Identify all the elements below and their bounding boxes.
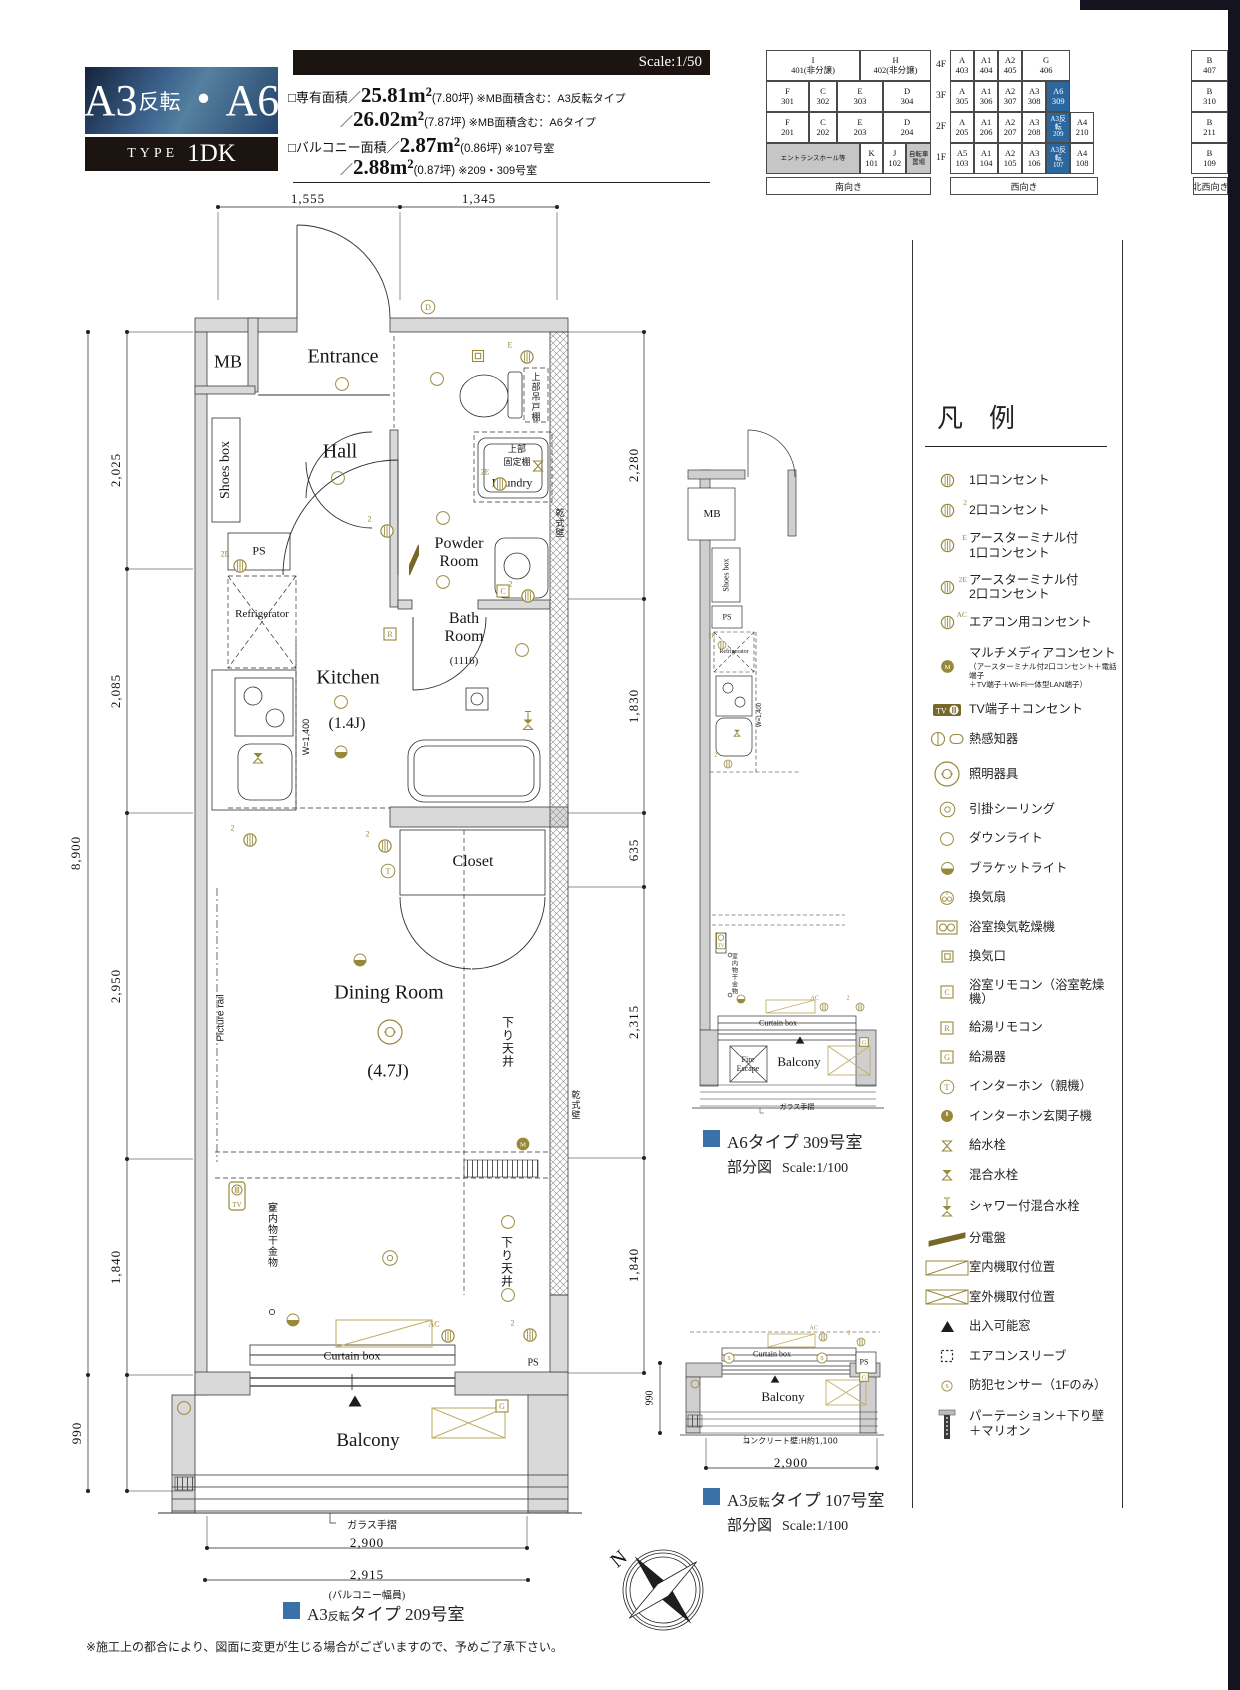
legend-item: シャワー付混合水栓 xyxy=(925,1196,1117,1217)
unit-cell-108: A4108 xyxy=(1070,143,1094,174)
o-plan-icon: E xyxy=(519,349,536,366)
outlet-earth-2-icon: 2E xyxy=(925,579,969,596)
o-plan-icon: AC xyxy=(440,1328,457,1345)
c-plan-icon xyxy=(333,694,349,710)
refrigerator-label: Refrigerator xyxy=(235,608,289,620)
title-part: A6 xyxy=(226,79,280,123)
legend-item-label: 照明器具 xyxy=(969,767,1018,782)
heat-detector-icon xyxy=(925,731,969,747)
legend-item-label: マルチメディアコンセント xyxy=(969,646,1116,660)
tapf-plan-icon xyxy=(251,751,265,765)
legend-item: TVTV端子＋コンセント xyxy=(925,701,1117,718)
bath-dryer-icon xyxy=(925,920,969,935)
vent-opening-icon xyxy=(925,950,969,963)
bath-size-label: (1116) xyxy=(450,655,479,667)
ocs-plan-icon: S xyxy=(816,1352,828,1364)
legend-item-label: インターホン（親機） xyxy=(969,1079,1092,1094)
legend-item: 出入可能窓 xyxy=(925,1318,1117,1335)
legend-item-label: 換気口 xyxy=(969,949,1006,964)
water-heater-icon: G xyxy=(925,1050,969,1064)
unit-cell-103: A5103 xyxy=(950,143,974,174)
half-plan-icon xyxy=(334,745,349,760)
legend-item: 室外機取付位置 xyxy=(925,1289,1117,1306)
outlet-1-icon xyxy=(925,472,969,489)
sq-plan-icon: R xyxy=(383,627,397,641)
svg-text:T: T xyxy=(945,1082,950,1091)
unit-cell-209: A3反転209 xyxy=(1046,112,1070,143)
mixing-tap-icon xyxy=(925,1168,969,1182)
svg-text:TV: TV xyxy=(718,944,725,949)
multimedia-outlet-icon: M xyxy=(925,659,969,674)
legend-item-label: 分電盤 xyxy=(969,1231,1006,1246)
legend-item-label: エアコンスリーブ xyxy=(969,1349,1066,1364)
a6-shoes-box-label: Shoes box xyxy=(722,558,731,591)
scale-bar: Scale:1/50 xyxy=(293,50,710,75)
unit-cell-303: E303 xyxy=(837,81,883,112)
legend-item: Tインターホン（親機） xyxy=(925,1078,1117,1095)
svg-text:G: G xyxy=(944,1053,950,1062)
legend-item: エアコンスリーブ xyxy=(925,1348,1117,1365)
legend-item: 1口コンセント xyxy=(925,472,1117,489)
svg-text:M: M xyxy=(520,1141,526,1148)
security-sensor-icon: S xyxy=(925,1380,969,1392)
half-plan-icon xyxy=(353,953,368,968)
o-plan-icon: 2 xyxy=(377,838,394,855)
o-plan-icon: 2 xyxy=(242,832,259,849)
dimension-label: 8,900 xyxy=(68,836,84,870)
legend-item-label: 給湯リモコン xyxy=(969,1020,1043,1035)
unit-cell: 自転車 置場 xyxy=(906,143,931,174)
a6-fire-escape-label: Fire Escape xyxy=(737,1055,760,1073)
area-line: ／26.02m²(7.87坪) ※MB面積含む：A6タイプ xyxy=(340,107,596,132)
kitchen-width-label: W=1,400 xyxy=(301,719,311,755)
powder-room-label: Powder Room xyxy=(435,535,484,571)
unit-cell-206: A1206 xyxy=(974,112,998,143)
board-plan-icon xyxy=(408,538,421,578)
dimension-label: 990 xyxy=(69,1422,85,1445)
c-plan-icon xyxy=(514,642,530,658)
title-part: A3 xyxy=(84,79,138,123)
legend-item: インターホン玄関子機 xyxy=(925,1108,1117,1125)
legend-item-label: 2口コンセント xyxy=(969,503,1050,518)
legend-item-label: 室外機取付位置 xyxy=(969,1290,1055,1305)
legend-item: 混合水栓 xyxy=(925,1167,1117,1184)
unit-cell-309: A6309 xyxy=(1046,81,1070,112)
legend-item: Eアースターミナル付 1口コンセント xyxy=(925,531,1117,560)
legend-item-label: ブラケットライト xyxy=(969,861,1067,876)
dimension-label: 2,915 xyxy=(350,1567,384,1583)
accessible-window-icon xyxy=(925,1320,969,1333)
dimension-label: 2,900 xyxy=(774,1455,808,1471)
outlet-2-icon: 2 xyxy=(925,502,969,519)
p107-balcony-label: Balcony xyxy=(761,1389,804,1405)
svg-text:R: R xyxy=(944,1024,950,1033)
unit-cell xyxy=(1070,50,1094,81)
o-plan-icon: 2E xyxy=(492,476,509,493)
p107-ps-label: PS xyxy=(860,1358,869,1367)
type-box: TYPE 1DK xyxy=(85,137,278,171)
tvbox-plan-icon: TV xyxy=(228,1181,246,1211)
svg-text:TV: TV xyxy=(232,1201,241,1209)
dimension-label: 990 xyxy=(645,1391,656,1406)
dimension-label: 2,900 xyxy=(350,1535,384,1551)
svg-text:S: S xyxy=(820,1356,823,1362)
hook2-plan-icon xyxy=(728,993,733,998)
dining-size-label: (4.7J) xyxy=(367,1061,409,1082)
a6-curtain-box-label: Curtain box xyxy=(759,1019,797,1028)
legend-item-label: 室内機取付位置 xyxy=(969,1260,1055,1275)
svg-text:M: M xyxy=(944,663,950,670)
bracket-light-icon xyxy=(925,861,969,876)
dimension-label: 2,280 xyxy=(626,448,642,482)
unit-cell-205: A205 xyxy=(950,112,974,143)
legend-item: ブラケットライト xyxy=(925,860,1117,877)
legend-item-label: TV端子＋コンセント xyxy=(969,702,1083,717)
legend-item-label: 熱感知器 xyxy=(969,732,1018,747)
unit-cell-104: A1104 xyxy=(974,143,998,174)
unit-cell-102: J102 xyxy=(883,143,906,174)
legend-item-label: 混合水栓 xyxy=(969,1168,1018,1183)
legend-item-label: 出入可能窓 xyxy=(969,1319,1031,1334)
unit-cell-406: G406 xyxy=(1022,50,1070,81)
floor-label-4F: 4F xyxy=(933,60,949,70)
svg-text:S: S xyxy=(945,1384,948,1390)
oc-plan-icon: T xyxy=(380,863,396,879)
unit-cell-202: C202 xyxy=(809,112,837,143)
compass-icon xyxy=(601,1528,725,1652)
mb-label: MB xyxy=(214,352,242,373)
caption-square-icon xyxy=(703,1130,720,1147)
kitchen-label: Kitchen xyxy=(316,667,379,690)
ceiling-hook-icon xyxy=(925,801,969,818)
dimension-label: 1,830 xyxy=(626,689,642,723)
direction-label: 西向き xyxy=(950,177,1098,195)
c-plan-icon xyxy=(176,1400,192,1416)
partition-icon xyxy=(925,1407,969,1441)
dining-room-label: Dining Room xyxy=(334,982,443,1005)
unit-cell-302: C302 xyxy=(809,81,837,112)
tri-plan-icon xyxy=(348,1395,363,1408)
escape-hatch xyxy=(175,1477,195,1490)
unit-cell-405: A2405 xyxy=(998,50,1022,81)
tapf2-plan-icon xyxy=(733,729,742,738)
legend-item: G給湯器 xyxy=(925,1049,1117,1066)
water-heater-remote-icon: R xyxy=(925,1021,969,1035)
c-plan-icon xyxy=(500,1287,516,1303)
outdoor-unit-icon xyxy=(925,1289,969,1305)
legend-item: 室内機取付位置 xyxy=(925,1259,1117,1276)
half2-plan-icon xyxy=(736,994,746,1004)
unit-cell-402(非分譲): H402(非分譲) xyxy=(860,50,931,81)
unit-cell-105: A2105 xyxy=(998,143,1022,174)
upper-hanging-shelf-label: 上部吊戸棚 xyxy=(529,372,542,422)
caption-square-icon xyxy=(283,1602,300,1619)
tri2-plan-icon xyxy=(795,1036,805,1045)
unit-cell-201: F201 xyxy=(766,112,809,143)
unit-cell-304: D304 xyxy=(883,81,931,112)
title-part: ・ xyxy=(182,79,226,123)
a6-mb-label: MB xyxy=(703,508,720,520)
unit-cell-308: A3308 xyxy=(1022,81,1046,112)
area-divider xyxy=(293,182,710,183)
legend-item: 引掛シーリング xyxy=(925,801,1117,818)
balcony-label: Balcony xyxy=(336,1430,399,1452)
p107-plan-caption: A3反転タイプ 107号室 部分図Scale:1/100 xyxy=(703,1486,885,1535)
closet-label: Closet xyxy=(453,853,494,871)
svg-text:G: G xyxy=(862,1040,867,1047)
legend-item-note: （アースターミナル付2口コンセント＋電話端子 ＋TV端子＋Wi-Fi一体型LAN… xyxy=(969,662,1117,689)
a6-glass-rail-label: ガラス手摺 xyxy=(780,1102,815,1112)
type-label: TYPE xyxy=(127,146,178,162)
sq-plan-icon: G xyxy=(495,1399,509,1413)
intercom-main-icon: T xyxy=(925,1079,969,1095)
floor-label-3F: 3F xyxy=(933,91,949,101)
shower-plan-icon xyxy=(521,710,535,731)
o-plan-icon: 2 xyxy=(379,523,396,540)
unit-cell-203: E203 xyxy=(837,112,883,143)
legend-item-label: 換気扇 xyxy=(969,890,1006,905)
c-plan-icon xyxy=(334,376,350,392)
ps-balcony-label: PS xyxy=(527,1358,538,1369)
west-facing-units: A403A1404A2405G406A305A1306A2307A3308A63… xyxy=(950,50,1094,174)
unit-cell-207: A2207 xyxy=(998,112,1022,143)
legend-item: ACエアコン用コンセント xyxy=(925,614,1117,631)
right-edge-bar xyxy=(1228,0,1240,1690)
dimension-label: 1,555 xyxy=(291,191,325,207)
legend-item: 熱感知器 xyxy=(925,731,1117,748)
p107-concrete-label: コンクリート壁:H約1,100 xyxy=(742,1436,838,1447)
sqo-plan-icon xyxy=(472,350,485,363)
legend-item: Mマルチメディアコンセント（アースターミナル付2口コンセント＋電話端子 ＋TV端… xyxy=(925,644,1117,689)
legend-item-label: 1口コンセント xyxy=(969,473,1050,488)
hook-plan-icon xyxy=(269,1309,276,1316)
unit-cell-107: A3反転107 xyxy=(1046,143,1070,174)
legend-item-label: 給湯器 xyxy=(969,1050,1006,1065)
dry-wall-2-label: 乾式壁 xyxy=(569,1090,582,1120)
glass-rail-label: ガラス手摺 xyxy=(347,1517,397,1532)
a6-plan-caption: A6タイプ 309号室 部分図Scale:1/100 xyxy=(703,1128,863,1177)
dblsm-plan-icon xyxy=(382,1250,399,1267)
water-tap-icon xyxy=(925,1139,969,1153)
dimension-label: 2,950 xyxy=(108,969,124,1003)
area-line: ／2.88m²(0.87坪) ※209・309号室 xyxy=(340,155,537,180)
top-edge-bar xyxy=(1080,0,1240,10)
a6-indoor-hanger-label: 室内物干金物 xyxy=(730,953,739,995)
sq2-plan-icon: G xyxy=(859,1037,869,1047)
legend-item: 分電盤 xyxy=(925,1230,1117,1247)
dimension-label: 1,840 xyxy=(626,1248,642,1282)
legend-item: 浴室換気乾燥機 xyxy=(925,919,1117,936)
half-plan-icon xyxy=(286,1313,301,1328)
curtain-box-label: Curtain box xyxy=(324,1349,381,1364)
o2-plan-icon: 2 xyxy=(855,1002,866,1013)
aircon-sleeve-icon xyxy=(925,1349,969,1363)
legend-item: R給湯リモコン xyxy=(925,1019,1117,1036)
o-plan-icon: 2 xyxy=(522,1327,539,1344)
type-value: 1DK xyxy=(187,140,236,168)
unit-cell-109: B109 xyxy=(1191,143,1228,174)
legend-panel: 凡 例 1口コンセント22口コンセントEアースターミナル付 1口コンセント2Eア… xyxy=(912,240,1123,1508)
bath-remote-icon: C xyxy=(925,985,969,999)
o2-plan-icon: AC xyxy=(818,1332,829,1343)
o2-plan-icon: AC xyxy=(819,1002,830,1013)
legend-item-label: 防犯センサー（1Fのみ） xyxy=(969,1378,1106,1393)
legend-item-label: 給水栓 xyxy=(969,1138,1006,1153)
tv-outlet-icon: TV xyxy=(925,702,969,718)
legend-header: 凡 例 xyxy=(937,398,1015,435)
outlet-earth-1-icon: E xyxy=(925,537,969,554)
svg-text:C: C xyxy=(944,988,949,997)
svg-text:T: T xyxy=(386,867,391,876)
unit-cell-306: A1306 xyxy=(974,81,998,112)
c2-plan-icon xyxy=(690,1379,700,1389)
floor-plan-sheet: A3反転・A6 TYPE 1DK Scale:1/50 □専有面積／25.81m… xyxy=(0,0,1240,1690)
drop-ceiling-2-label: 下り天井 xyxy=(499,1236,516,1288)
a6-kitchen-width-label: W=1,400 xyxy=(757,703,763,727)
unit-cell-305: A305 xyxy=(950,81,974,112)
legend-item-label: 浴室リモコン（浴室乾燥機） xyxy=(969,978,1117,1007)
legend-item-label: パーテーション＋下り壁 ＋マリオン xyxy=(969,1409,1104,1438)
picture-rail-label: Picture rail xyxy=(216,994,227,1041)
legend-item-label: アースターミナル付 2口コンセント xyxy=(969,573,1078,602)
unit-cell: エントランスホール等 xyxy=(766,143,860,174)
svg-text:R: R xyxy=(387,630,393,639)
legend-item: 換気扇 xyxy=(925,889,1117,906)
distribution-board-icon xyxy=(925,1230,969,1247)
svg-text:S: S xyxy=(727,1356,730,1362)
oc-plan-icon: D xyxy=(420,299,436,315)
dimension-label: 2,315 xyxy=(626,1005,642,1039)
unit-cell-310: B310 xyxy=(1191,81,1228,112)
intercom-entrance-icon xyxy=(925,1109,969,1123)
p107-partial-plan xyxy=(680,1332,884,1442)
unit-cell-307: A2307 xyxy=(998,81,1022,112)
ocs-plan-icon: S xyxy=(723,1352,735,1364)
sq2-plan-icon: G xyxy=(859,1372,869,1382)
tri2-plan-icon xyxy=(770,1375,780,1384)
bath-room-label: Bath Room xyxy=(444,610,483,646)
o2-plan-icon: 2E xyxy=(717,640,728,651)
legend-item: 2Eアースターミナル付 2口コンセント xyxy=(925,573,1117,602)
unit-cell-403: A403 xyxy=(950,50,974,81)
direction-label: 南向き xyxy=(766,177,931,195)
c-plan-icon xyxy=(429,371,445,387)
light-fixture-icon xyxy=(925,760,969,788)
legend-item: C浴室リモコン（浴室乾燥機） xyxy=(925,978,1117,1007)
main-plan-caption: A3反転タイプ 209号室 xyxy=(283,1600,465,1625)
o2-plan-icon: 2 xyxy=(856,1337,867,1348)
legend-item-label: エアコン用コンセント xyxy=(969,615,1092,630)
a6-balcony-label: Balcony xyxy=(777,1054,820,1070)
c-plan-icon xyxy=(435,510,451,526)
legend-item-label: 引掛シーリング xyxy=(969,802,1055,817)
legend-item-label: シャワー付混合水栓 xyxy=(969,1199,1080,1214)
kitchen-size-label: (1.4J) xyxy=(329,715,366,733)
dbl-plan-icon xyxy=(376,1018,404,1046)
o-plan-icon: 2E xyxy=(232,558,249,575)
northwest-facing-units: B407B310B211B109 xyxy=(1191,50,1228,174)
c-plan-icon xyxy=(435,574,451,590)
unit-cell-204: D204 xyxy=(883,112,931,143)
tap-plan-icon xyxy=(531,459,545,473)
dimension-label: 1,840 xyxy=(108,1250,124,1284)
direction-label: 北西向き xyxy=(1193,177,1228,195)
legend-item-label: アースターミナル付 1口コンセント xyxy=(969,531,1078,560)
indoor-unit-icon xyxy=(925,1260,969,1276)
unit-cell-101: K101 xyxy=(860,143,883,174)
dimension-label: 635 xyxy=(626,839,642,862)
upper-fixed-shelf-label: 上部 固定棚 xyxy=(503,442,530,468)
outlet-aircon-icon: AC xyxy=(925,614,969,631)
unit-cell-404: A1404 xyxy=(974,50,998,81)
unit-cell-407: B407 xyxy=(1191,50,1228,81)
dimension-label: 2,085 xyxy=(108,674,124,708)
dry-wall-hatch xyxy=(550,332,568,1295)
p107-curtain-box-label: Curtain box xyxy=(753,1350,791,1359)
svg-text:TV: TV xyxy=(936,706,947,715)
tvbox2-plan-icon: TV xyxy=(716,933,726,950)
vent-fan-icon xyxy=(925,890,969,906)
o-plan-icon: 2 xyxy=(520,588,537,605)
footnote: ※施工上の都合により、図面に変更が生じる場合がございますので、予めご了承下さい。 xyxy=(86,1638,563,1655)
om-plan-icon: M xyxy=(516,1137,531,1152)
shower-mixing-tap-icon xyxy=(925,1196,969,1217)
legend-item: S防犯センサー（1Fのみ） xyxy=(925,1377,1117,1394)
legend-item: 給水栓 xyxy=(925,1137,1117,1154)
entrance-label: Entrance xyxy=(307,346,378,369)
floor-label-1F: 1F xyxy=(933,153,949,163)
dimension-label: 1,345 xyxy=(462,191,496,207)
legend-item: ダウンライト xyxy=(925,830,1117,847)
a6-ps-label: PS xyxy=(723,613,732,622)
unit-cell-210: A4210 xyxy=(1070,112,1094,143)
plan-type-title: A3反転・A6 xyxy=(85,67,278,134)
floor-label-2F: 2F xyxy=(933,122,949,132)
title-part: 反転 xyxy=(138,86,182,116)
legend-item-label: インターホン玄関子機 xyxy=(969,1109,1092,1124)
legend-item: 22口コンセント xyxy=(925,502,1117,519)
c-plan-icon xyxy=(500,1214,516,1230)
unit-cell-301: F301 xyxy=(766,81,809,112)
svg-text:G: G xyxy=(862,1375,867,1382)
unit-cell-106: A3106 xyxy=(1022,143,1046,174)
ps-kitchen-label: PS xyxy=(252,544,265,559)
dimension-label: 2,025 xyxy=(108,453,124,487)
unit-cell xyxy=(1070,81,1094,112)
unit-cell-401(非分譲): I401(非分譲) xyxy=(766,50,860,81)
legend-item-label: ダウンライト xyxy=(969,831,1043,846)
hook-plan-icon xyxy=(269,1205,276,1212)
unit-cell-211: B211 xyxy=(1191,112,1228,143)
shoes-box-label: Shoes box xyxy=(218,441,234,499)
legend-rule xyxy=(925,446,1107,447)
svg-text:G: G xyxy=(499,1402,505,1411)
dry-wall-1-label: 乾式壁 xyxy=(553,508,566,538)
scale-label: Scale:1/50 xyxy=(639,54,702,71)
caption-square-icon xyxy=(703,1488,720,1505)
drop-ceiling-1-label: 下り天井 xyxy=(500,1016,517,1068)
svg-text:D: D xyxy=(425,303,431,312)
area-line: □専有面積／25.81m²(7.80坪) ※MB面積含む：A3反転タイプ xyxy=(288,83,626,108)
counter-hatch xyxy=(464,1160,538,1177)
legend-item: パーテーション＋下り壁 ＋マリオン xyxy=(925,1407,1117,1441)
unit-cell-208: A3208 xyxy=(1022,112,1046,143)
legend-item: 換気口 xyxy=(925,948,1117,965)
o2-plan-icon: 2 xyxy=(723,759,734,770)
legend-items: 1口コンセント22口コンセントEアースターミナル付 1口コンセント2Eアースター… xyxy=(925,472,1117,1441)
svg-text:C: C xyxy=(500,587,505,596)
legend-item: 照明器具 xyxy=(925,760,1117,788)
